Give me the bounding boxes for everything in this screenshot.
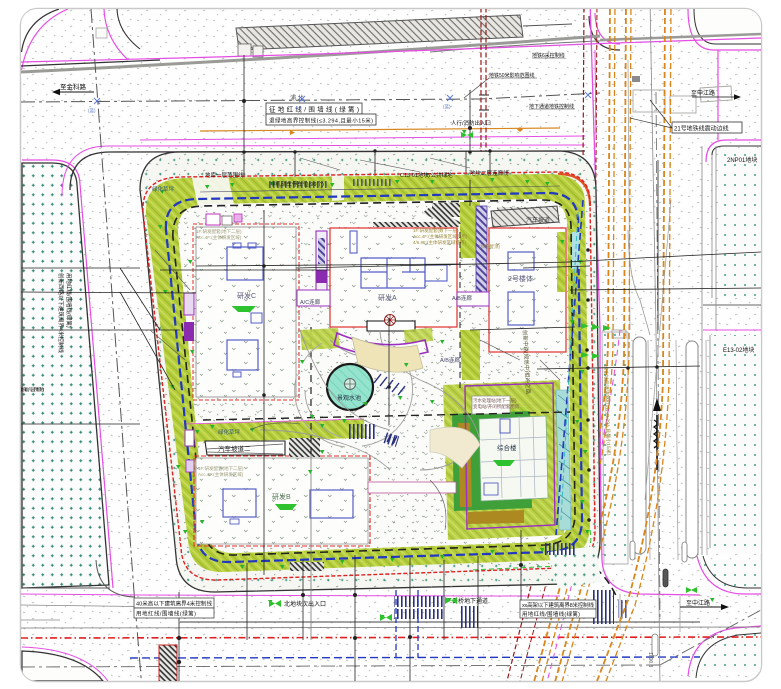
svg-text:退绿地高界控制线(≤3.294,且最小15米): 退绿地高界控制线(≤3.294,且最小15米)	[269, 117, 373, 125]
svg-text:40米高以下建筑离界4米控制线: 40米高以下建筑离界4米控制线	[136, 600, 212, 608]
svg-text:2号楼体: 2号楼体	[508, 274, 533, 283]
svg-text:E13-02地块: E13-02地块	[723, 346, 754, 354]
svg-text:创新西路以下建筑离界4米控制线: 创新西路以下建筑离界4米控制线	[57, 273, 65, 354]
svg-text:A/B连廊: A/B连廊	[452, 294, 472, 302]
svg-text:至中江路: 至中江路	[686, 599, 710, 607]
svg-text:地块二层连廊线: 地块二层连廊线	[470, 169, 509, 177]
svg-text:汽车坡道: 汽车坡道	[526, 216, 550, 224]
svg-text:研发C: 研发C	[237, 291, 256, 300]
svg-text:非机动车停车位(96个): 非机动车停车位(96个)	[270, 180, 324, 188]
svg-text:汽车坡道二: 汽车坡道二	[218, 444, 251, 453]
svg-text:研发B: 研发B	[272, 492, 291, 501]
svg-text:1800.3: 1800.3	[647, 652, 653, 668]
svg-text:(蓝): (蓝)	[443, 103, 451, 109]
svg-text:污水处理站(地下一层): 污水处理站(地下一层)	[473, 397, 517, 404]
svg-text:地库一层范围线: 地库一层范围线	[205, 171, 244, 179]
svg-text:A/C连廊: A/C连廊	[300, 298, 321, 306]
svg-text:云桥地下通道: 云桥地下通道	[452, 597, 488, 605]
svg-text:xx高架以下建筑离界8米控制线: xx高架以下建筑离界8米控制线	[522, 601, 594, 609]
svg-text:Acc.4F:(主体研发区域使用): Acc.4F:(主体研发区域使用)	[413, 233, 468, 240]
svg-text:变电站/开闭所配套用房: 变电站/开闭所配套用房	[473, 403, 520, 410]
svg-text:4.5: 4.5	[295, 105, 302, 110]
svg-text:C13-01地块/公共绿地: C13-01地块/公共绿地	[400, 171, 453, 179]
svg-text:综合楼: 综合楼	[497, 443, 517, 452]
svg-text:至金科路: 至金科路	[60, 82, 87, 91]
svg-text:4/6.9F:(主体研发区域使用): 4/6.9F:(主体研发区域使用)	[413, 239, 467, 246]
svg-text:北地块次出入口: 北地块次出入口	[284, 600, 326, 608]
svg-text:用地红线/围墙线(绿篱): 用地红线/围墙线(绿篱)	[522, 610, 580, 618]
svg-text:(蓝): (蓝)	[88, 107, 96, 113]
svg-text:(绿植屋顶): (绿植屋顶)	[479, 243, 500, 250]
svg-text:1F:研发配套(地下二层): 1F:研发配套(地下二层)	[196, 228, 242, 235]
svg-text:2NP01地块: 2NP01地块	[727, 156, 757, 164]
svg-text:景观水池: 景观水池	[337, 394, 361, 402]
svg-text:绿化草坪: 绿化草坪	[152, 185, 175, 193]
svg-text:A/B连廊: A/B连廊	[440, 356, 460, 364]
svg-text:征地红线/围墙线(绿篱): 征地红线/围墙线(绿篱)	[269, 105, 359, 114]
svg-text:1F:研发配套(数下一层): 1F:研发配套(数下一层)	[413, 227, 459, 234]
svg-text:至申江路: 至申江路	[691, 89, 715, 97]
svg-text:Acc.4F:(主体研发区域): Acc.4F:(主体研发区域)	[196, 234, 242, 241]
svg-text:用地红线/围墙线(绿篱): 用地红线/围墙线(绿篱)	[65, 273, 73, 328]
svg-text:用地红线/围墙线(绿篱): 用地红线/围墙线(绿篱)	[136, 610, 196, 618]
svg-text:人行/消防出入口: 人行/消防出入口	[451, 119, 491, 127]
svg-text:21号地铁线震动边线: 21号地铁线震动边线	[674, 125, 729, 133]
svg-text:1F:研发配套(地下二层): 1F:研发配套(地下二层)	[198, 465, 244, 472]
svg-text:Acc.4F:(主体研发区域): Acc.4F:(主体研发区域)	[198, 471, 244, 478]
svg-text:研发A: 研发A	[378, 293, 397, 302]
svg-text:绿化草坪: 绿化草坪	[218, 428, 241, 436]
svg-text:E14-01地块(幼儿园预留地): E14-01地块(幼儿园预留地)	[14, 386, 45, 393]
